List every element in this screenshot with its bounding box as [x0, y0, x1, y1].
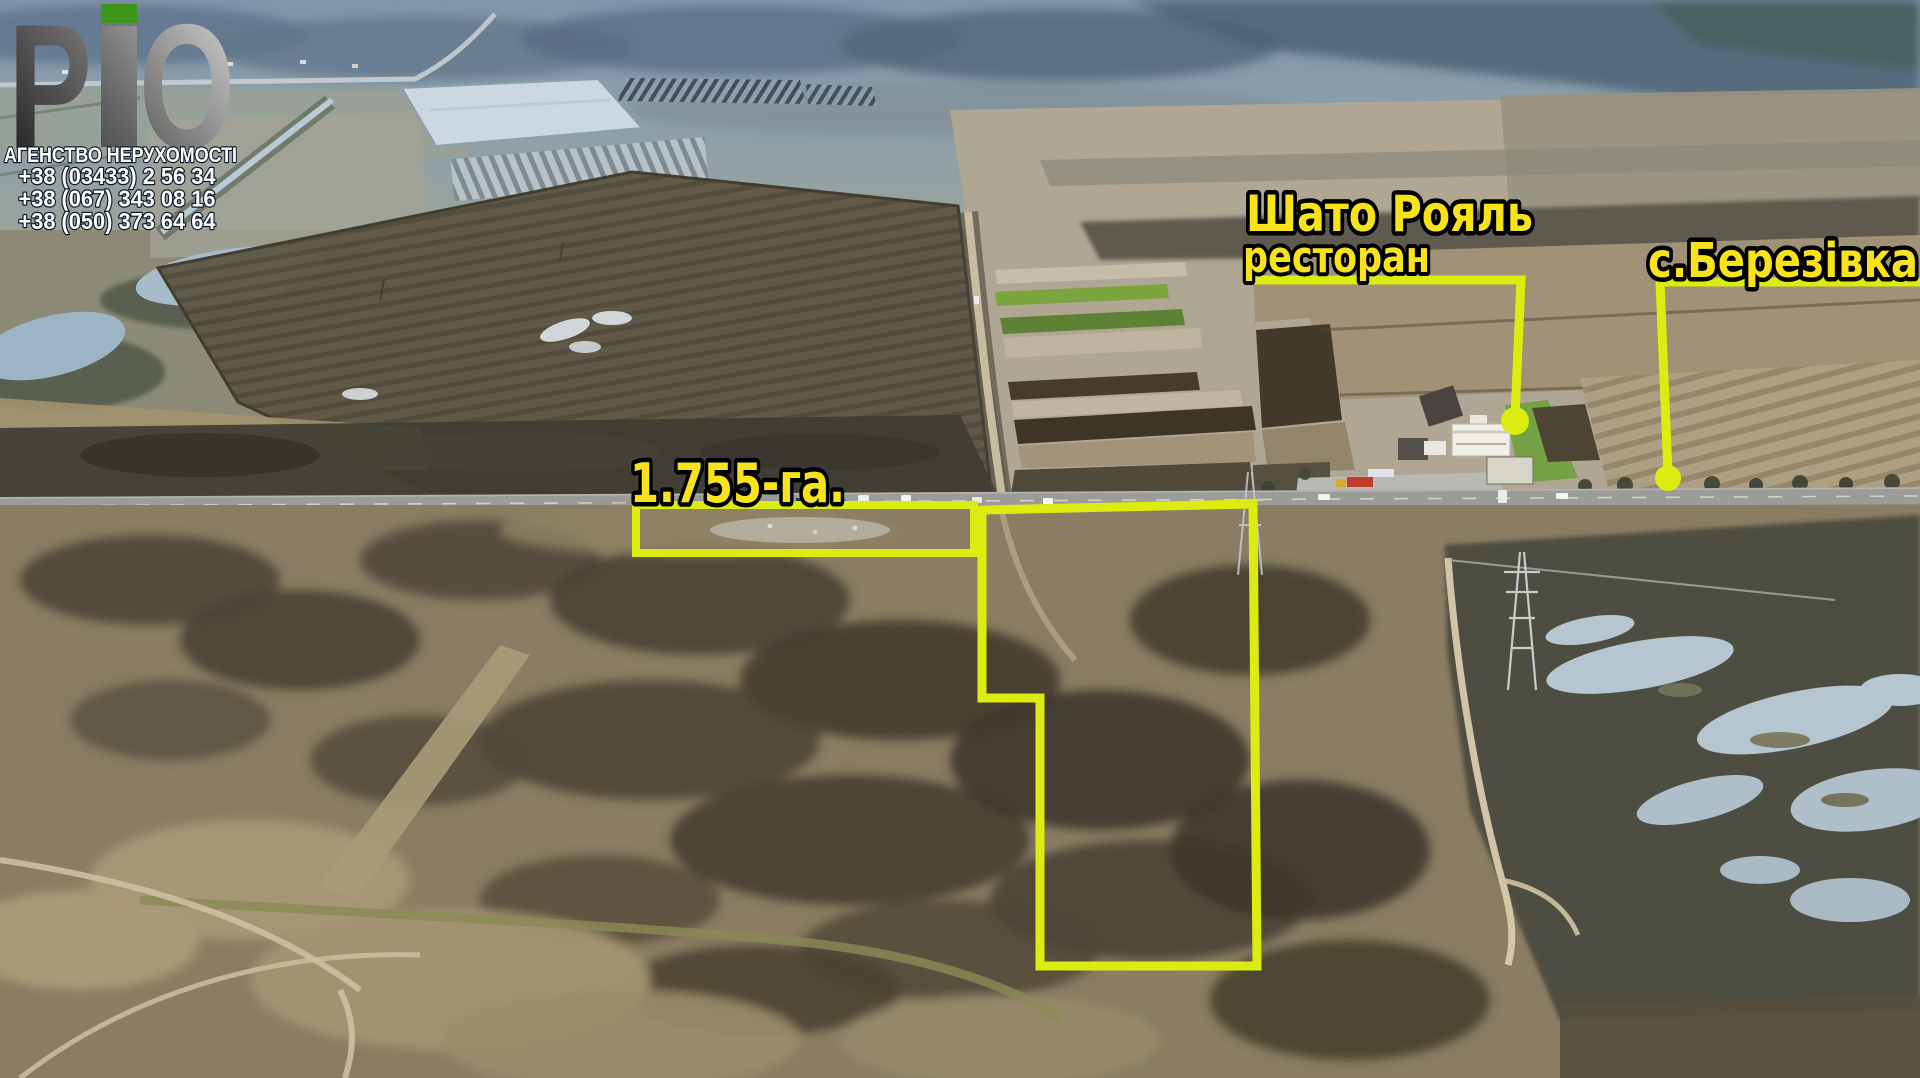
solar-farm — [618, 78, 806, 104]
restaurant-building — [1452, 424, 1510, 456]
scrub-patch — [20, 535, 280, 625]
snow-patch — [342, 388, 378, 400]
gas-station-canopy — [1368, 469, 1394, 477]
scrub-bottom-right — [1560, 995, 1920, 1078]
logo-i-dot — [101, 4, 137, 23]
village-house — [352, 64, 358, 68]
phone-number: +38 (050) 373 64 64 — [19, 208, 216, 234]
car — [901, 495, 911, 501]
village-label: с.Березівка — [1648, 233, 1918, 289]
scrub-patch — [70, 680, 270, 760]
scrub-patch — [1210, 940, 1490, 1060]
leader-dot-village — [1655, 465, 1681, 491]
marsh-island — [1821, 793, 1869, 807]
wetland-water — [1790, 878, 1910, 922]
wetland-water — [1720, 856, 1800, 884]
car — [1043, 498, 1053, 504]
tree — [1299, 468, 1311, 480]
van — [1498, 490, 1507, 503]
low-building — [1487, 457, 1533, 484]
debris — [768, 524, 773, 529]
area-label: 1.755-га. — [630, 452, 845, 515]
dark-plot — [1256, 324, 1342, 428]
snow-patch — [569, 341, 601, 353]
yellow-truck — [1336, 479, 1346, 487]
logo-i-stem — [101, 26, 137, 147]
debris — [853, 526, 858, 531]
debris-field — [710, 517, 890, 543]
debris — [813, 530, 818, 535]
red-truck — [1347, 477, 1373, 487]
solar-farm — [806, 84, 877, 106]
scrub-patch — [1170, 780, 1430, 920]
car-on-dirt-road — [974, 296, 979, 304]
tree-clump — [80, 433, 320, 477]
car — [1556, 493, 1568, 499]
aerial-photo-canvas: Шато Рояль ресторан с.Березівка 1.755-га… — [0, 0, 1920, 1078]
car — [1318, 494, 1330, 500]
car — [858, 495, 869, 501]
marsh-island — [1658, 683, 1702, 697]
leader-dot-restaurant — [1501, 407, 1529, 435]
marsh-island — [1750, 732, 1810, 748]
village-house — [300, 60, 306, 64]
tree-clump — [380, 432, 660, 472]
dark-roof-hall — [1398, 438, 1428, 460]
branding-overlay: Р О АГЕНСТВО НЕРУХОМОСТІ +38 (03433) 2 5… — [4, 0, 237, 234]
mown-field — [1580, 360, 1920, 495]
small-building — [1424, 441, 1446, 455]
snow-patch — [592, 311, 632, 325]
restaurant-subtitle: ресторан — [1243, 232, 1430, 283]
aerial-listing-photo: Шато Рояль ресторан с.Березівка 1.755-га… — [0, 0, 1920, 1078]
